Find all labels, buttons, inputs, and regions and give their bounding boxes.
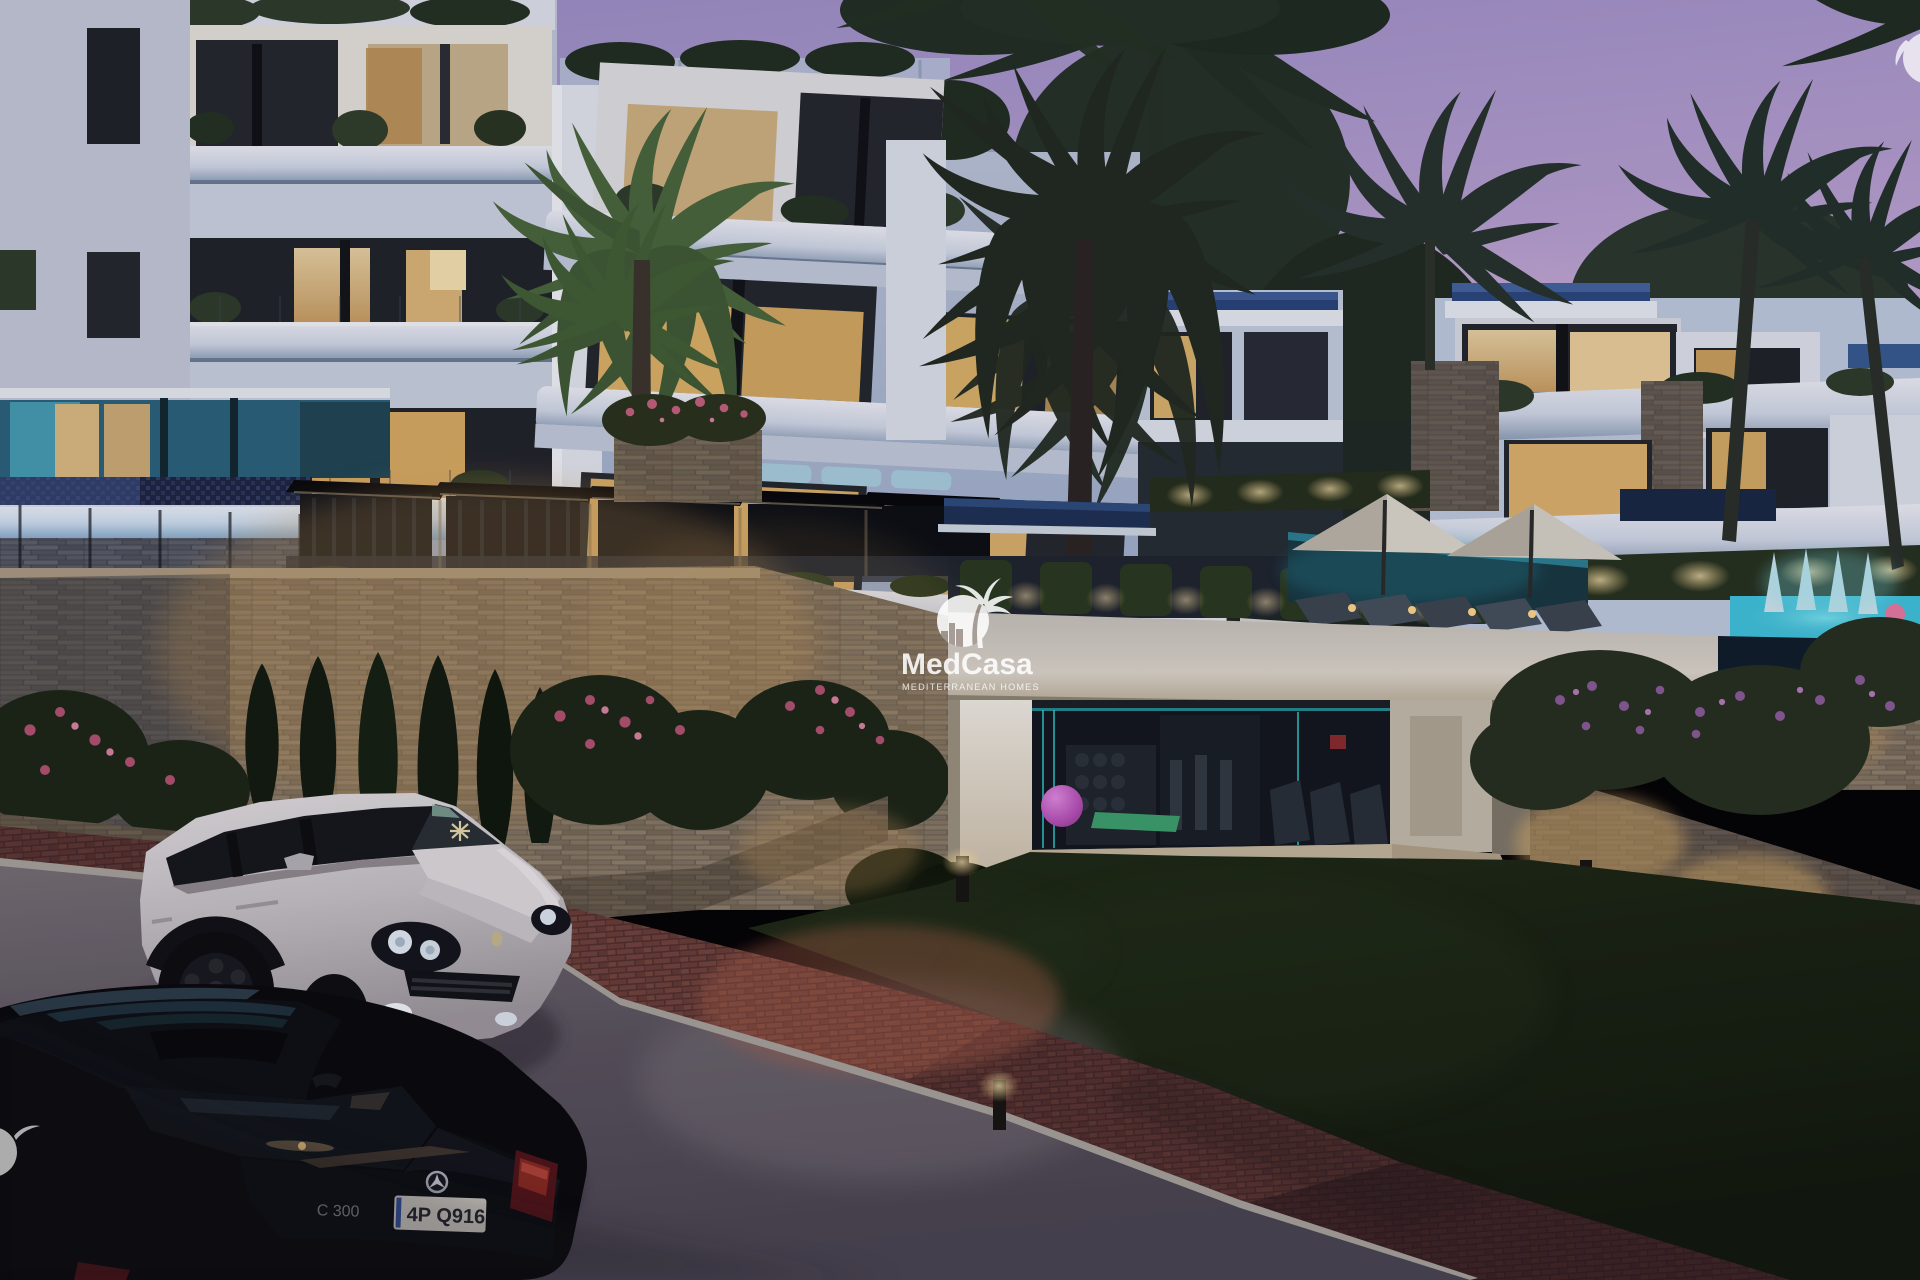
svg-text:MEDITERRANEAN HOMES: MEDITERRANEAN HOMES	[902, 682, 1040, 692]
svg-text:MedCasa: MedCasa	[901, 648, 1033, 681]
